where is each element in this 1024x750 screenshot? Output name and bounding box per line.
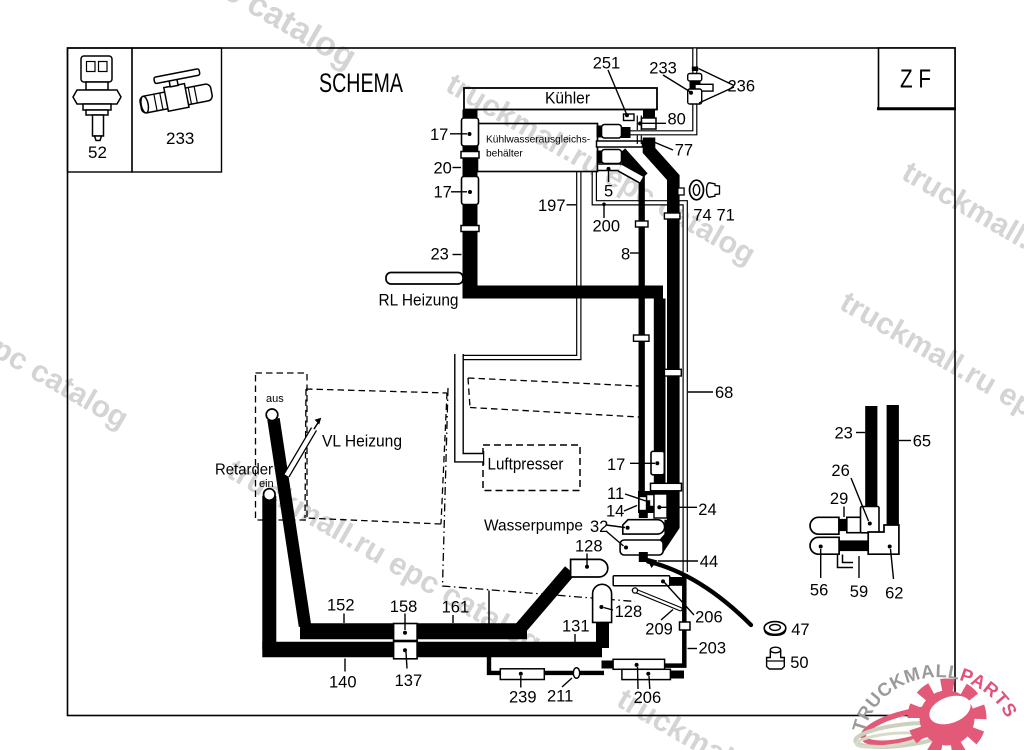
svg-text:251: 251	[593, 55, 621, 73]
svg-text:158: 158	[390, 598, 418, 616]
svg-text:239: 239	[509, 689, 537, 707]
svg-text:ein: ein	[259, 478, 274, 490]
svg-text:11: 11	[607, 485, 624, 503]
svg-text:Kühler: Kühler	[545, 89, 590, 108]
svg-text:128: 128	[615, 603, 643, 621]
svg-text:200: 200	[593, 218, 621, 236]
svg-text:77: 77	[675, 142, 693, 160]
svg-text:206: 206	[634, 689, 662, 707]
svg-text:203: 203	[699, 640, 727, 658]
svg-text:65: 65	[913, 433, 931, 451]
svg-text:20: 20	[434, 160, 452, 178]
svg-text:SCHEMA: SCHEMA	[319, 68, 403, 98]
svg-text:44: 44	[700, 553, 718, 571]
svg-text:233: 233	[166, 129, 194, 148]
svg-text:137: 137	[395, 672, 423, 690]
svg-text:128: 128	[575, 538, 603, 556]
svg-text:211: 211	[547, 688, 573, 706]
svg-text:17: 17	[434, 184, 452, 202]
svg-text:Kühlwasserausgleichs-: Kühlwasserausgleichs-	[486, 135, 590, 146]
svg-text:17: 17	[430, 126, 448, 144]
svg-text:62: 62	[885, 585, 903, 603]
svg-text:aus: aus	[266, 393, 284, 405]
svg-text:Retarder: Retarder	[215, 462, 274, 479]
svg-text:71: 71	[717, 207, 735, 225]
svg-text:161: 161	[442, 599, 470, 617]
svg-text:80: 80	[668, 111, 686, 129]
svg-text:14: 14	[606, 503, 624, 521]
svg-text:152: 152	[327, 597, 355, 615]
svg-text:VL Heizung: VL Heizung	[322, 433, 402, 451]
svg-text:8: 8	[621, 246, 630, 264]
svg-text:50: 50	[790, 654, 808, 672]
svg-text:32: 32	[590, 518, 608, 536]
svg-text:29: 29	[830, 490, 848, 508]
svg-text:5: 5	[604, 183, 613, 201]
svg-text:59: 59	[850, 583, 868, 601]
svg-text:26: 26	[831, 462, 849, 480]
svg-text:68: 68	[715, 384, 733, 402]
svg-text:47: 47	[791, 621, 809, 639]
svg-text:197: 197	[538, 197, 566, 215]
svg-text:24: 24	[698, 501, 716, 519]
svg-text:233: 233	[649, 60, 677, 78]
svg-text:56: 56	[810, 582, 828, 600]
svg-text:23: 23	[835, 425, 853, 443]
svg-text:Luftpresser: Luftpresser	[488, 456, 564, 474]
svg-text:Wasserpumpe: Wasserpumpe	[484, 518, 583, 535]
svg-text:140: 140	[329, 674, 357, 692]
svg-text:236: 236	[728, 78, 756, 96]
svg-text:23: 23	[431, 246, 449, 264]
svg-text:131: 131	[562, 618, 590, 636]
svg-text:206: 206	[695, 609, 723, 627]
svg-text:52: 52	[88, 143, 107, 162]
svg-text:17: 17	[607, 456, 625, 474]
svg-text:Z F: Z F	[900, 64, 931, 94]
svg-text:74: 74	[693, 207, 711, 225]
svg-text:behälter: behälter	[486, 149, 523, 160]
svg-text:209: 209	[645, 621, 673, 639]
svg-text:RL Heizung: RL Heizung	[379, 292, 459, 310]
